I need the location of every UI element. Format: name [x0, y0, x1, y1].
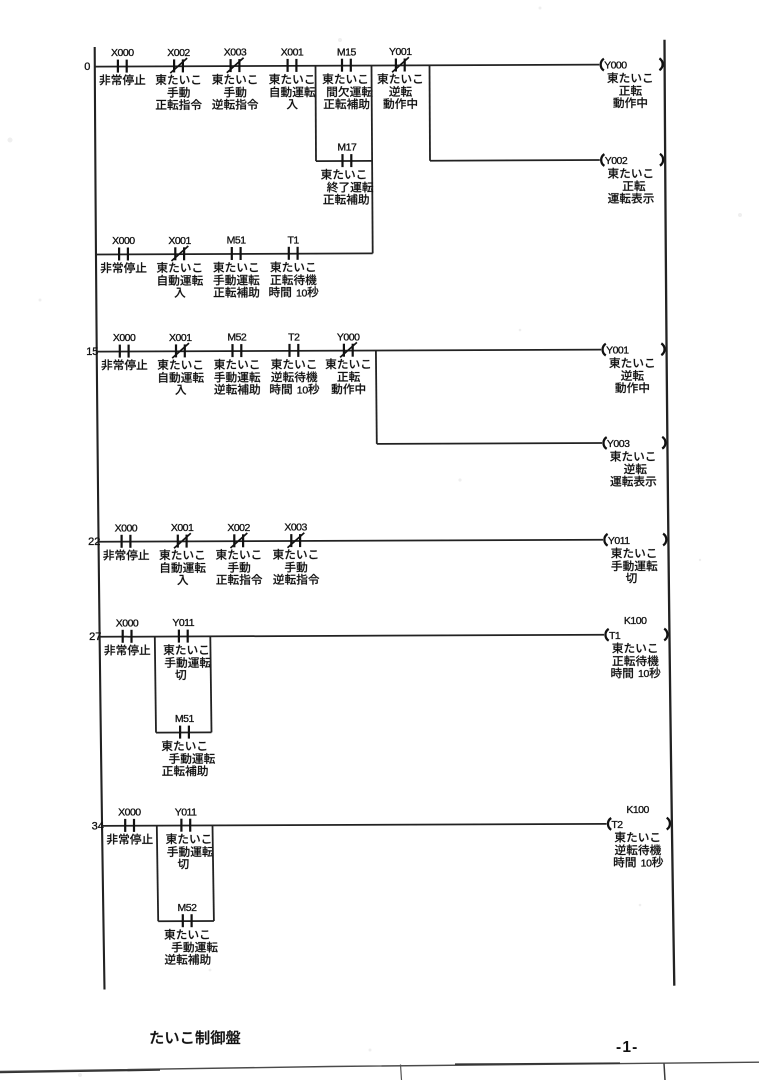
- svg-text:Y011: Y011: [175, 806, 197, 818]
- svg-text:-1-: -1-: [616, 1039, 639, 1056]
- svg-text:10: 10: [641, 857, 653, 869]
- svg-text:10: 10: [638, 668, 650, 680]
- svg-text:X002: X002: [227, 522, 250, 534]
- svg-text:X000: X000: [111, 47, 134, 59]
- svg-text:X002: X002: [167, 47, 190, 59]
- svg-text:15: 15: [86, 346, 98, 358]
- svg-text:X003: X003: [284, 522, 307, 534]
- svg-text:T2: T2: [288, 332, 300, 344]
- svg-text:Y011: Y011: [172, 617, 194, 629]
- svg-text:X001: X001: [281, 47, 304, 59]
- svg-text:M17: M17: [337, 142, 357, 154]
- svg-text:X000: X000: [118, 807, 141, 819]
- svg-text:Y001: Y001: [606, 345, 629, 357]
- svg-text:X000: X000: [115, 522, 138, 534]
- svg-text:X001: X001: [169, 332, 192, 344]
- svg-text:Y000: Y000: [337, 331, 360, 343]
- svg-text:Y002: Y002: [605, 155, 628, 167]
- svg-text:X001: X001: [171, 522, 194, 534]
- svg-text:0: 0: [84, 61, 90, 73]
- svg-text:M52: M52: [178, 902, 198, 914]
- svg-text:M51: M51: [175, 713, 195, 725]
- svg-text:Y011: Y011: [608, 535, 630, 547]
- svg-text:X003: X003: [224, 47, 247, 59]
- svg-text:T2: T2: [611, 819, 623, 831]
- svg-text:X000: X000: [112, 235, 135, 247]
- svg-text:10: 10: [297, 384, 309, 396]
- svg-text:M15: M15: [337, 46, 357, 58]
- svg-text:T1: T1: [287, 234, 299, 246]
- svg-text:27: 27: [89, 631, 101, 643]
- svg-text:Y000: Y000: [604, 60, 627, 72]
- svg-text:X000: X000: [116, 617, 139, 629]
- svg-text:Y003: Y003: [607, 438, 630, 450]
- svg-text:Y001: Y001: [389, 46, 412, 58]
- svg-text:M52: M52: [227, 332, 247, 344]
- svg-text:X000: X000: [113, 332, 136, 344]
- svg-text:M51: M51: [227, 235, 247, 247]
- svg-text:X001: X001: [168, 235, 191, 247]
- svg-text:T1: T1: [609, 630, 621, 642]
- svg-text:K100: K100: [624, 615, 647, 627]
- svg-text:K100: K100: [626, 804, 649, 816]
- svg-text:34: 34: [92, 820, 104, 832]
- svg-text:10: 10: [296, 287, 308, 299]
